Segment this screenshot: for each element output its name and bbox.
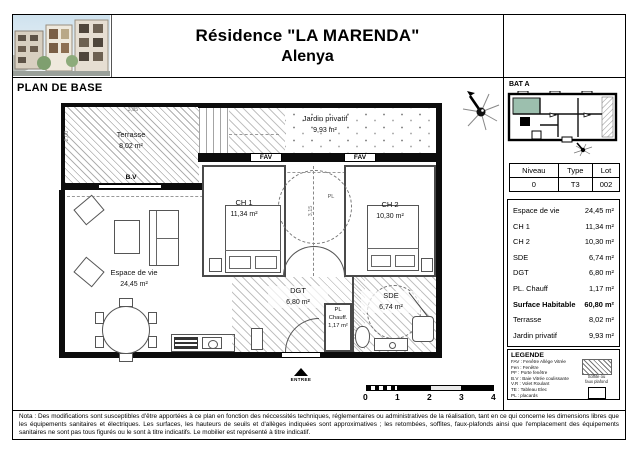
dim-hall-depth: 3,15 [308,199,314,223]
unit-header-type: Type [558,164,592,178]
area-row: Terrasse8,02 m² [513,315,614,324]
highlighted-unit [513,98,540,114]
shower [374,338,408,351]
gaine-caption: Gaine technique [577,399,616,400]
key-plan [506,91,622,159]
scale-tick-4: 4 [491,392,496,402]
room-sde-label: SDE 6,74 m² [361,291,421,313]
sliding-bay-window [99,184,161,189]
hall-door-arc [283,246,345,276]
legend-title: LEGENDE [511,352,616,359]
room-jardin-label: Jardin privatif 9,93 m² [265,114,385,136]
unit-value-lot: 002 [593,178,620,192]
toilet [355,326,370,348]
hedge-strip [199,108,229,154]
fav-window-left: FAV [250,153,282,162]
unit-table-value-row: 0 T3 002 [510,178,620,192]
area-row: PL. Chauff1,17 m² [513,284,614,293]
ch2-bed-line [367,248,419,249]
room-pl-chauff-label: PL Chauff. 1,17 m² [321,306,355,330]
washbasin [412,316,434,342]
bay-window-label: B.V [113,174,149,181]
unit-header-lot: Lot [593,164,620,178]
entrance-arrow-icon [294,368,308,376]
turning-circle-hall [278,170,352,244]
title-block-right-cell [503,15,625,77]
area-row: DGT6,80 m² [513,268,614,277]
sde-left-wall [352,277,354,352]
room-ch1-label: CH 1 11,34 m² [204,198,284,220]
coffee-table [114,220,140,254]
kitchen-sink [202,337,222,349]
kitchen-hob [174,337,198,349]
fav-window-right: FAV [344,153,376,162]
entrance-label: ENTREE [281,377,321,382]
scale-tick-3: 3 [459,392,464,402]
area-row: Espace de vie24,45 m² [513,206,614,215]
plan-sheet: Résidence "LA MARENDA" Alenya PLAN DE BA… [0,0,640,452]
dining-table [102,306,150,354]
building-photo [13,15,112,77]
sheet-frame: Résidence "LA MARENDA" Alenya PLAN DE BA… [12,14,626,440]
nota-text: Nota : Des modifications sont susceptibl… [13,410,625,439]
hall-closet-label: PL [323,194,339,200]
ch1-pillow-right [255,256,277,269]
north-arrow-icon [459,90,503,134]
soffite-swatch-icon [582,359,612,375]
floor-plan: PLAN DE BASE B.V 3,85 2,00 Terrasse 8,02… [13,78,503,410]
unit-value-type: T3 [558,178,592,192]
area-row-total: Surface Habitable60,80 m² [513,300,614,309]
ch2-nightstand [421,258,433,272]
unit-table: Niveau Type Lot 0 T3 002 [509,163,620,192]
dim-terrace-depth: 2,00 [64,124,70,148]
area-row: CH 210,30 m² [513,237,614,246]
building-photo-image [13,15,110,76]
legend: LEGENDE FAV : Fenêtre Allège Vitrée Fen … [507,349,620,400]
unit-value-niveau: 0 [510,178,559,192]
room-ch2-label: CH 2 10,30 m² [350,200,430,222]
title-block: Résidence "LA MARENDA" Alenya [13,15,625,78]
scale-tick-0: 0 [363,392,368,402]
area-row: SDE6,74 m² [513,253,614,262]
ch2-pillow-right [395,255,415,267]
soffite-caption: Soffite ou faux plafond [577,375,616,385]
right-outer-wall [436,103,442,358]
fav-wall [198,153,436,162]
elec-panel [251,328,263,350]
gaine-swatch-icon [588,387,606,399]
dim-terrace-width: 3,85 [103,107,163,113]
scale-tick-1: 1 [395,392,400,402]
bat-label: BAT A [509,81,530,88]
ch1-nightstand-left [209,258,222,272]
unit-table-header-row: Niveau Type Lot [510,164,620,178]
plan-label: PLAN DE BASE [17,82,103,94]
unit-header-niveau: Niveau [510,164,559,178]
ch1-bed-line [225,250,281,251]
room-terrasse-label: Terrasse 8,02 m² [93,130,169,152]
left-outer-wall [59,190,65,358]
sidebar: BAT A [503,78,625,410]
scale-tick-2: 2 [427,392,432,402]
entrance-opening [282,352,320,358]
garden-dim-line [229,134,279,135]
sofa [149,210,179,266]
area-row: Jardin privatif9,93 m² [513,331,614,340]
bottom-outer-wall [59,352,442,358]
ch1-pillow-left [229,256,251,269]
title-line2: Alenya [281,47,333,67]
ch2-pillow-left [371,255,391,267]
title-line1: Résidence "LA MARENDA" [196,25,420,46]
areas-table: Espace de vie24,45 m² CH 111,34 m² CH 21… [507,199,620,347]
room-dgt-label: DGT 6,80 m² [268,286,328,308]
armchair-1 [73,195,104,226]
document-title: Résidence "LA MARENDA" Alenya [112,15,503,77]
area-row: CH 111,34 m² [513,222,614,231]
legend-items: FAV : Fenêtre Allège Vitrée Fen : Fenêtr… [511,359,577,400]
